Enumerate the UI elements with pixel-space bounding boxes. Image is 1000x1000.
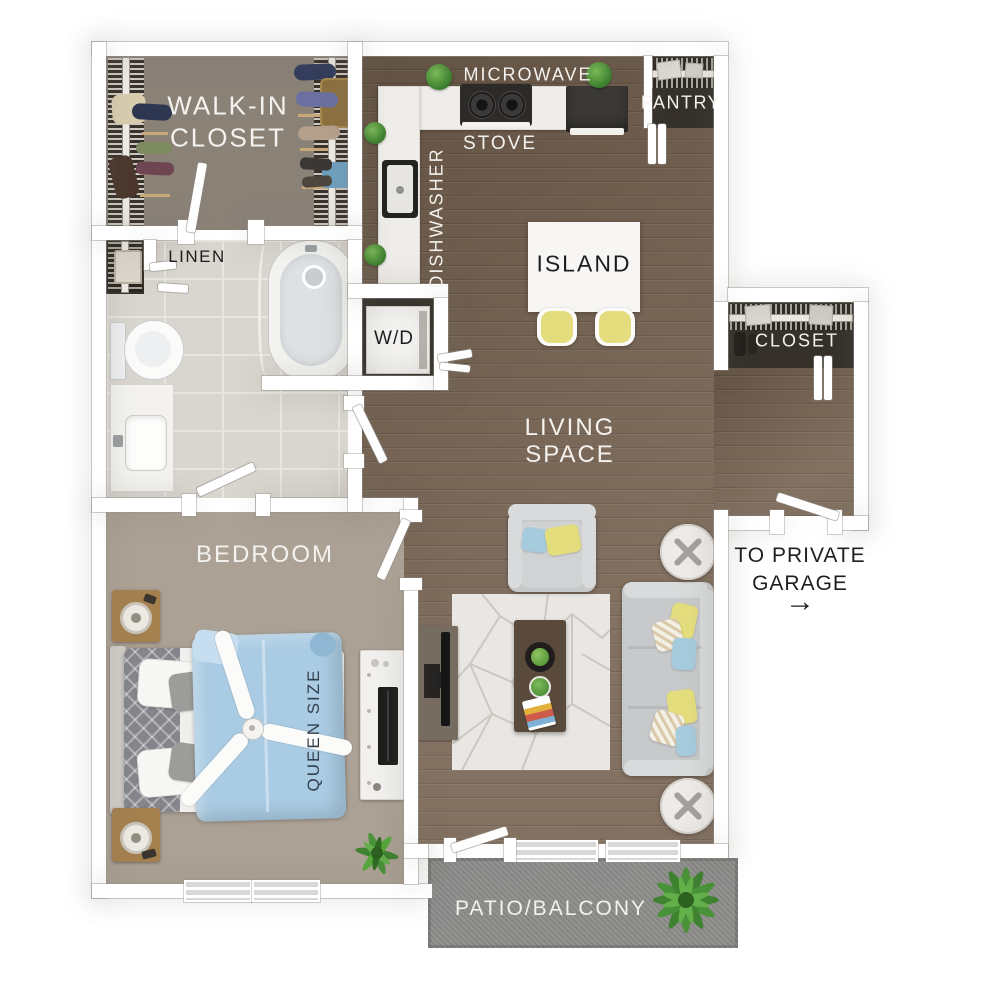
pantry-label: PANTRY [641, 93, 721, 114]
closet-door [824, 356, 832, 400]
potted-plant [652, 866, 720, 934]
closet-label: CLOSET [755, 331, 839, 352]
burner [468, 91, 496, 119]
refrigerator [566, 86, 628, 132]
nightstand-item [143, 593, 157, 605]
washer-dryer-label: W/D [374, 328, 414, 350]
tv-stand [434, 672, 441, 688]
duvet-corner [310, 632, 337, 657]
entry-hall-floor [714, 362, 854, 516]
clothes-item [302, 175, 333, 188]
dresser-item [373, 783, 381, 791]
lamp-center [131, 613, 141, 623]
lamp [120, 602, 152, 634]
bathtub [268, 240, 356, 382]
side-table [660, 778, 716, 834]
fan-hub-center [249, 725, 255, 731]
wall [728, 288, 868, 302]
door-jamb [400, 578, 422, 590]
linen-basket [114, 250, 142, 284]
coffee-table [514, 620, 566, 732]
armchair-arm [508, 514, 522, 588]
nightstand [112, 808, 160, 862]
potted-plant [354, 830, 400, 876]
throw-pillow [544, 523, 582, 556]
sofa [620, 582, 716, 776]
sink-faucet [113, 435, 123, 447]
wall [404, 584, 418, 884]
dishwasher-label: DISHWASHER [427, 147, 448, 288]
pantry-door [648, 124, 656, 164]
dresser-item [383, 661, 389, 667]
wall [262, 376, 448, 390]
stove-label: STOVE [463, 133, 537, 155]
storage-box [810, 305, 833, 324]
washer-dryer-door [419, 311, 427, 369]
magazine [522, 695, 556, 731]
right-arrow-icon: → [785, 585, 815, 619]
bedroom-label: BEDROOM [196, 541, 334, 569]
wall [92, 42, 106, 898]
tv [378, 687, 398, 765]
wall [92, 42, 728, 56]
wall [348, 42, 362, 240]
dresser [360, 650, 408, 800]
clothes-item [136, 161, 174, 175]
door-jamb [504, 838, 516, 862]
fruit [531, 648, 549, 666]
pantry-door [658, 124, 666, 164]
storage-box [657, 61, 681, 80]
plant-center [678, 892, 694, 908]
tub-faucet [305, 245, 317, 252]
kitchen-sink [382, 160, 418, 218]
sofa-arm [624, 582, 708, 598]
bathroom-vanity [110, 384, 174, 492]
wall [854, 302, 868, 530]
clothes-item [132, 103, 173, 121]
toilet-bowl [124, 320, 184, 380]
throw-pillow [675, 726, 696, 757]
tv [441, 632, 450, 726]
potted-plant [364, 122, 386, 144]
wall [256, 498, 406, 512]
stool-seat [599, 311, 631, 343]
window [608, 842, 678, 860]
living-space-label-line2: SPACE [525, 441, 615, 469]
island-label: ISLAND [536, 251, 631, 278]
nightstand [112, 590, 160, 642]
dresser-item [371, 659, 379, 667]
armchair [508, 504, 596, 592]
bar-stool [595, 308, 635, 346]
wall [248, 226, 362, 240]
clothes-item [298, 125, 340, 140]
wall [404, 844, 428, 858]
sink-faucet [396, 186, 404, 194]
garage-label-line1: TO PRIVATE [734, 544, 865, 568]
door-jamb [256, 494, 270, 516]
stove [460, 84, 532, 126]
wall [348, 466, 362, 512]
armchair-arm [582, 514, 596, 588]
clothes-item [296, 91, 338, 107]
throw-pillow [671, 637, 697, 671]
window [186, 882, 250, 900]
clothes-item [136, 142, 172, 154]
microwave-label: MICROWAVE [464, 65, 593, 86]
tv-console [414, 626, 458, 740]
closet-door [814, 356, 822, 400]
door-jamb [248, 220, 264, 244]
sink [125, 415, 167, 471]
floor-plan: WALK-IN CLOSET LINEN MICROWAVE STOVE DIS… [0, 0, 1000, 1000]
knob [367, 781, 371, 785]
living-space-label-line1: LIVING [525, 414, 616, 442]
burner [498, 91, 526, 119]
walk-in-closet-label-line2: CLOSET [170, 123, 286, 154]
window [254, 882, 318, 900]
clothes-item [300, 157, 333, 171]
potted-plant [426, 64, 452, 90]
refrigerator-handle [570, 128, 624, 135]
storage-box [686, 63, 703, 77]
wall [92, 498, 192, 512]
storage-box [745, 305, 770, 325]
door-jamb [344, 454, 364, 468]
knob [367, 709, 371, 713]
side-table [660, 524, 716, 580]
wall [596, 844, 608, 858]
walk-in-closet-label-line1: WALK-IN [167, 91, 288, 122]
sofa-arm [624, 760, 708, 776]
hanger [142, 132, 168, 135]
lamp-center [131, 833, 141, 843]
linen-label: LINEN [168, 247, 226, 267]
potted-plant [364, 244, 386, 266]
tub-drain [302, 265, 326, 289]
queen-size-label: QUEEN SIZE [304, 669, 324, 792]
hanger [140, 194, 170, 197]
door-jamb [182, 494, 196, 516]
wall [92, 226, 186, 240]
oven-handle [462, 122, 530, 127]
window [514, 842, 596, 860]
patio-balcony-label: PATIO/BALCONY [455, 897, 647, 921]
door-jamb [770, 510, 784, 534]
stool-seat [541, 311, 573, 343]
wall [714, 510, 728, 858]
knob [367, 745, 371, 749]
plant-center [371, 847, 383, 859]
wall [714, 302, 728, 370]
hanger [300, 148, 328, 151]
wall [676, 844, 728, 858]
toilet-seat [135, 331, 171, 367]
wall [434, 298, 448, 390]
clothes-item [734, 332, 746, 356]
knob [367, 673, 371, 677]
tv-screen-line [387, 691, 389, 761]
bar-stool [537, 308, 577, 346]
fruit-bowl [525, 642, 555, 672]
